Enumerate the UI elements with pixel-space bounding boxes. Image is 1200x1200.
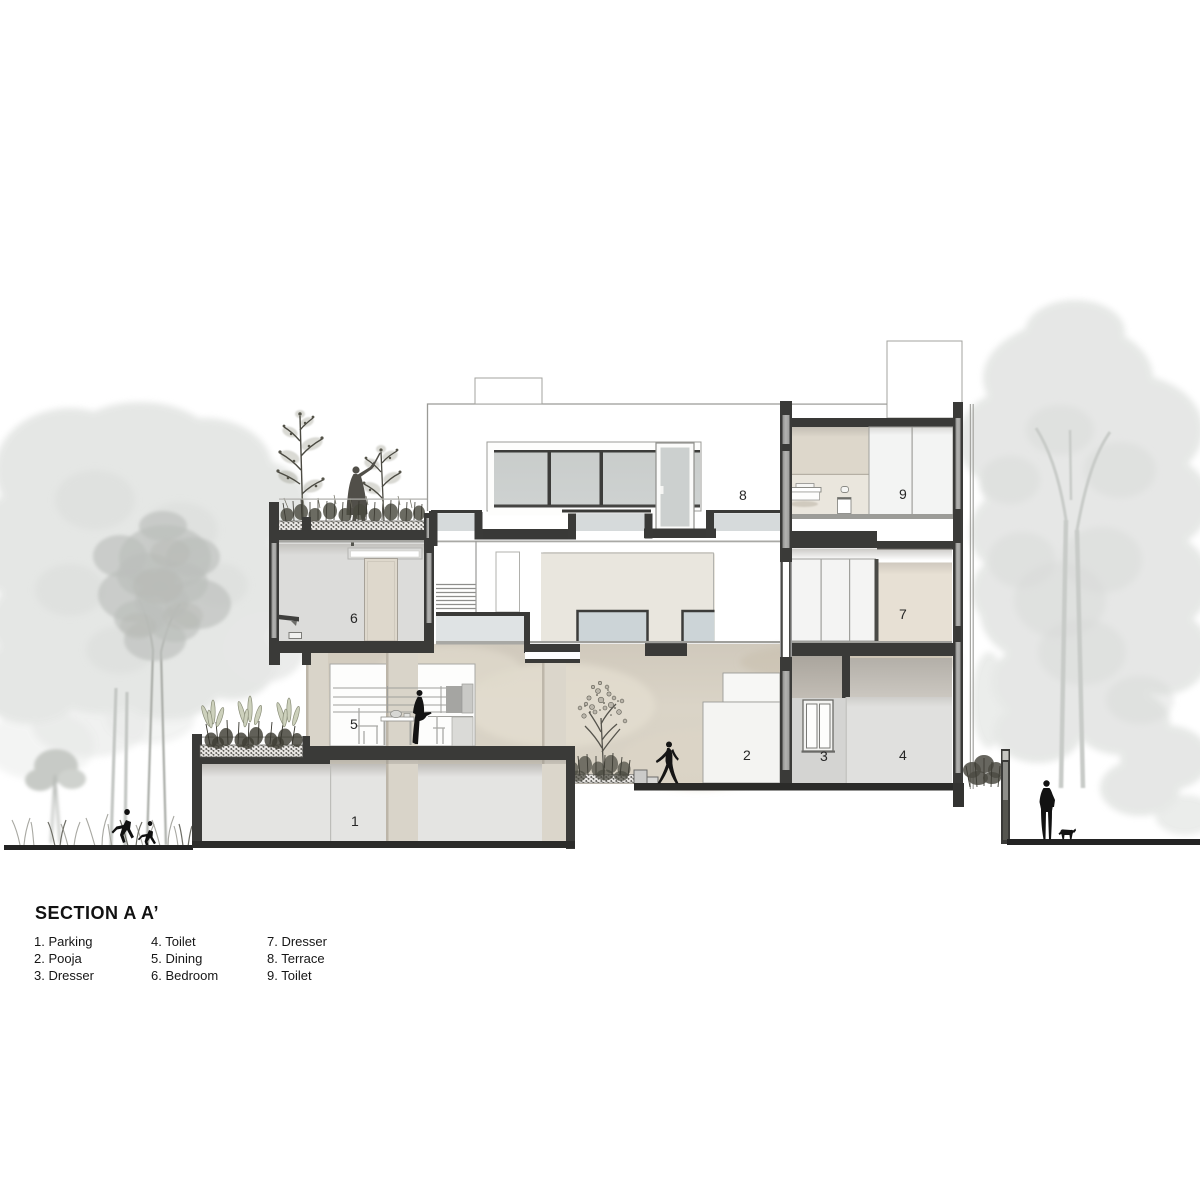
svg-text:3: 3 bbox=[820, 748, 828, 764]
svg-text:4. Toilet: 4. Toilet bbox=[151, 934, 196, 949]
svg-text:5: 5 bbox=[350, 716, 358, 732]
svg-text:5. Dining: 5. Dining bbox=[151, 951, 202, 966]
svg-text:6. Bedroom: 6. Bedroom bbox=[151, 968, 218, 983]
svg-text:8: 8 bbox=[739, 487, 747, 503]
svg-text:9: 9 bbox=[899, 486, 907, 502]
svg-text:2: 2 bbox=[743, 747, 751, 763]
svg-text:9. Toilet: 9. Toilet bbox=[267, 968, 312, 983]
svg-text:6: 6 bbox=[350, 610, 358, 626]
svg-text:7. Dresser: 7. Dresser bbox=[267, 934, 328, 949]
svg-text:3. Dresser: 3. Dresser bbox=[34, 968, 95, 983]
svg-text:7: 7 bbox=[899, 606, 907, 622]
svg-text:4: 4 bbox=[899, 747, 907, 763]
svg-text:SECTION A A’: SECTION A A’ bbox=[35, 903, 159, 923]
svg-text:8. Terrace: 8. Terrace bbox=[267, 951, 325, 966]
svg-text:2. Pooja: 2. Pooja bbox=[34, 951, 82, 966]
svg-text:1: 1 bbox=[351, 813, 359, 829]
svg-text:1. Parking: 1. Parking bbox=[34, 934, 93, 949]
